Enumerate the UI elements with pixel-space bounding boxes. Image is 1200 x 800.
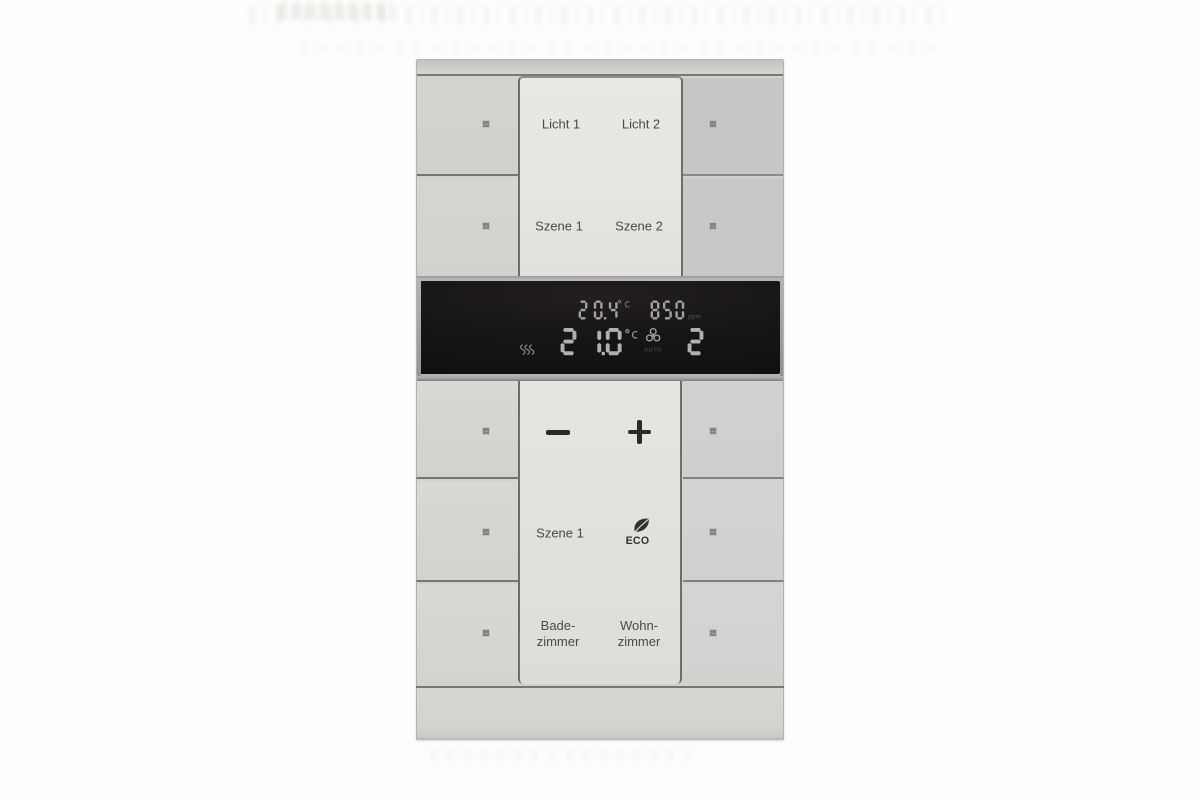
svg-text:ECO: ECO: [626, 535, 650, 547]
svg-text:ppm: ppm: [688, 313, 701, 320]
svg-text:AUTO: AUTO: [644, 347, 662, 353]
